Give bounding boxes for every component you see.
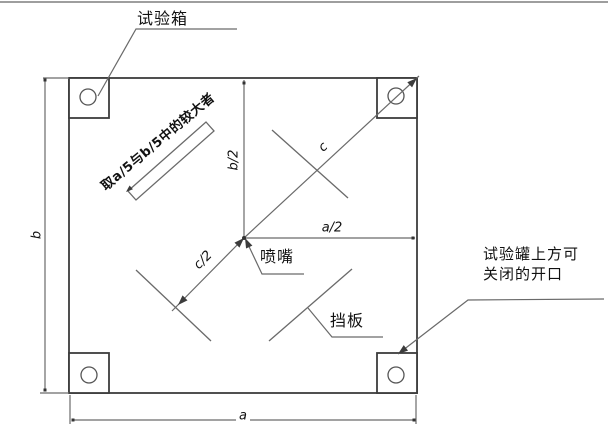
label-nozzle: 喷嘴 <box>260 248 294 266</box>
leader-test-chamber <box>98 29 237 96</box>
label-tank-opening: 试验罐上方可 关闭的开口 <box>483 244 579 284</box>
dim-label-b-half: b/2 <box>228 150 243 171</box>
corner-post-square <box>377 353 417 393</box>
label-baffle: 挡板 <box>330 312 364 330</box>
dim-label-a: a <box>236 410 250 425</box>
corner-post-bottom-right <box>377 353 417 393</box>
label-tank-opening-line1: 试验罐上方可 <box>483 244 579 264</box>
dim-label-a-half: a/2 <box>322 222 343 237</box>
baffle-line-lower-left <box>136 270 211 341</box>
nozzle-point <box>242 236 246 240</box>
label-test-chamber: 试验箱 <box>137 10 188 28</box>
corner-post-square <box>69 353 109 393</box>
dim-line-c <box>244 76 419 238</box>
label-tank-opening-line2: 关闭的开口 <box>483 264 579 284</box>
dim-label-b: b <box>31 231 46 239</box>
chamber-outline <box>69 78 417 393</box>
arrowheads <box>124 75 419 356</box>
leader-opening <box>398 299 604 354</box>
corner-post-square <box>69 78 109 118</box>
chamber-plan-drawing <box>0 0 608 434</box>
drawing-canvas: 试验箱 喷嘴 挡板 试验罐上方可 关闭的开口 取a/5与b/5中的较大者 a b… <box>0 0 608 434</box>
baffle-line-upper-right <box>272 130 348 198</box>
corner-post-top-left <box>69 78 109 118</box>
corner-post-bottom-left <box>69 353 109 393</box>
